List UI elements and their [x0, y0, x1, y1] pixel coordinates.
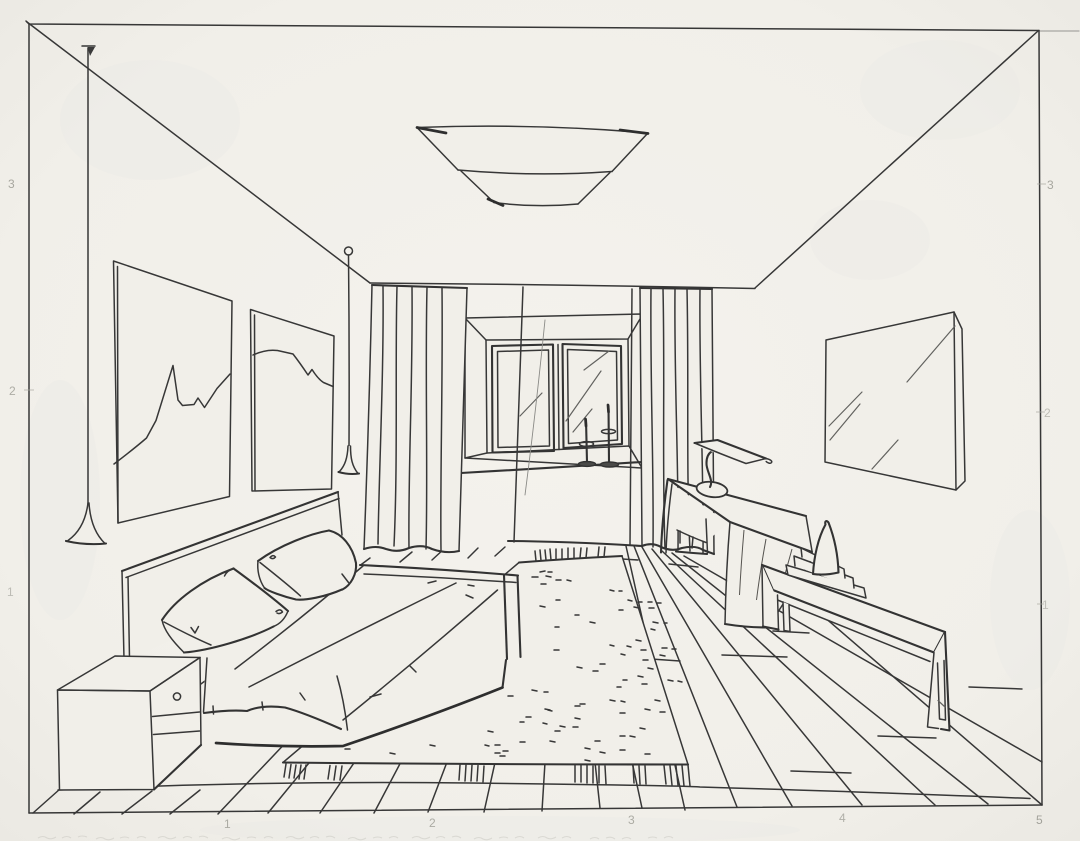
svg-text:2: 2	[429, 816, 436, 830]
svg-text:3: 3	[1047, 178, 1054, 192]
svg-text:1: 1	[1042, 598, 1049, 612]
svg-text:1: 1	[224, 817, 231, 831]
svg-text:4: 4	[839, 811, 846, 825]
svg-text:2: 2	[9, 384, 16, 398]
svg-text:3: 3	[8, 177, 15, 191]
svg-text:3: 3	[628, 813, 635, 827]
svg-text:2: 2	[1044, 406, 1051, 420]
svg-text:1: 1	[7, 585, 14, 599]
svg-text:5: 5	[1036, 813, 1043, 827]
